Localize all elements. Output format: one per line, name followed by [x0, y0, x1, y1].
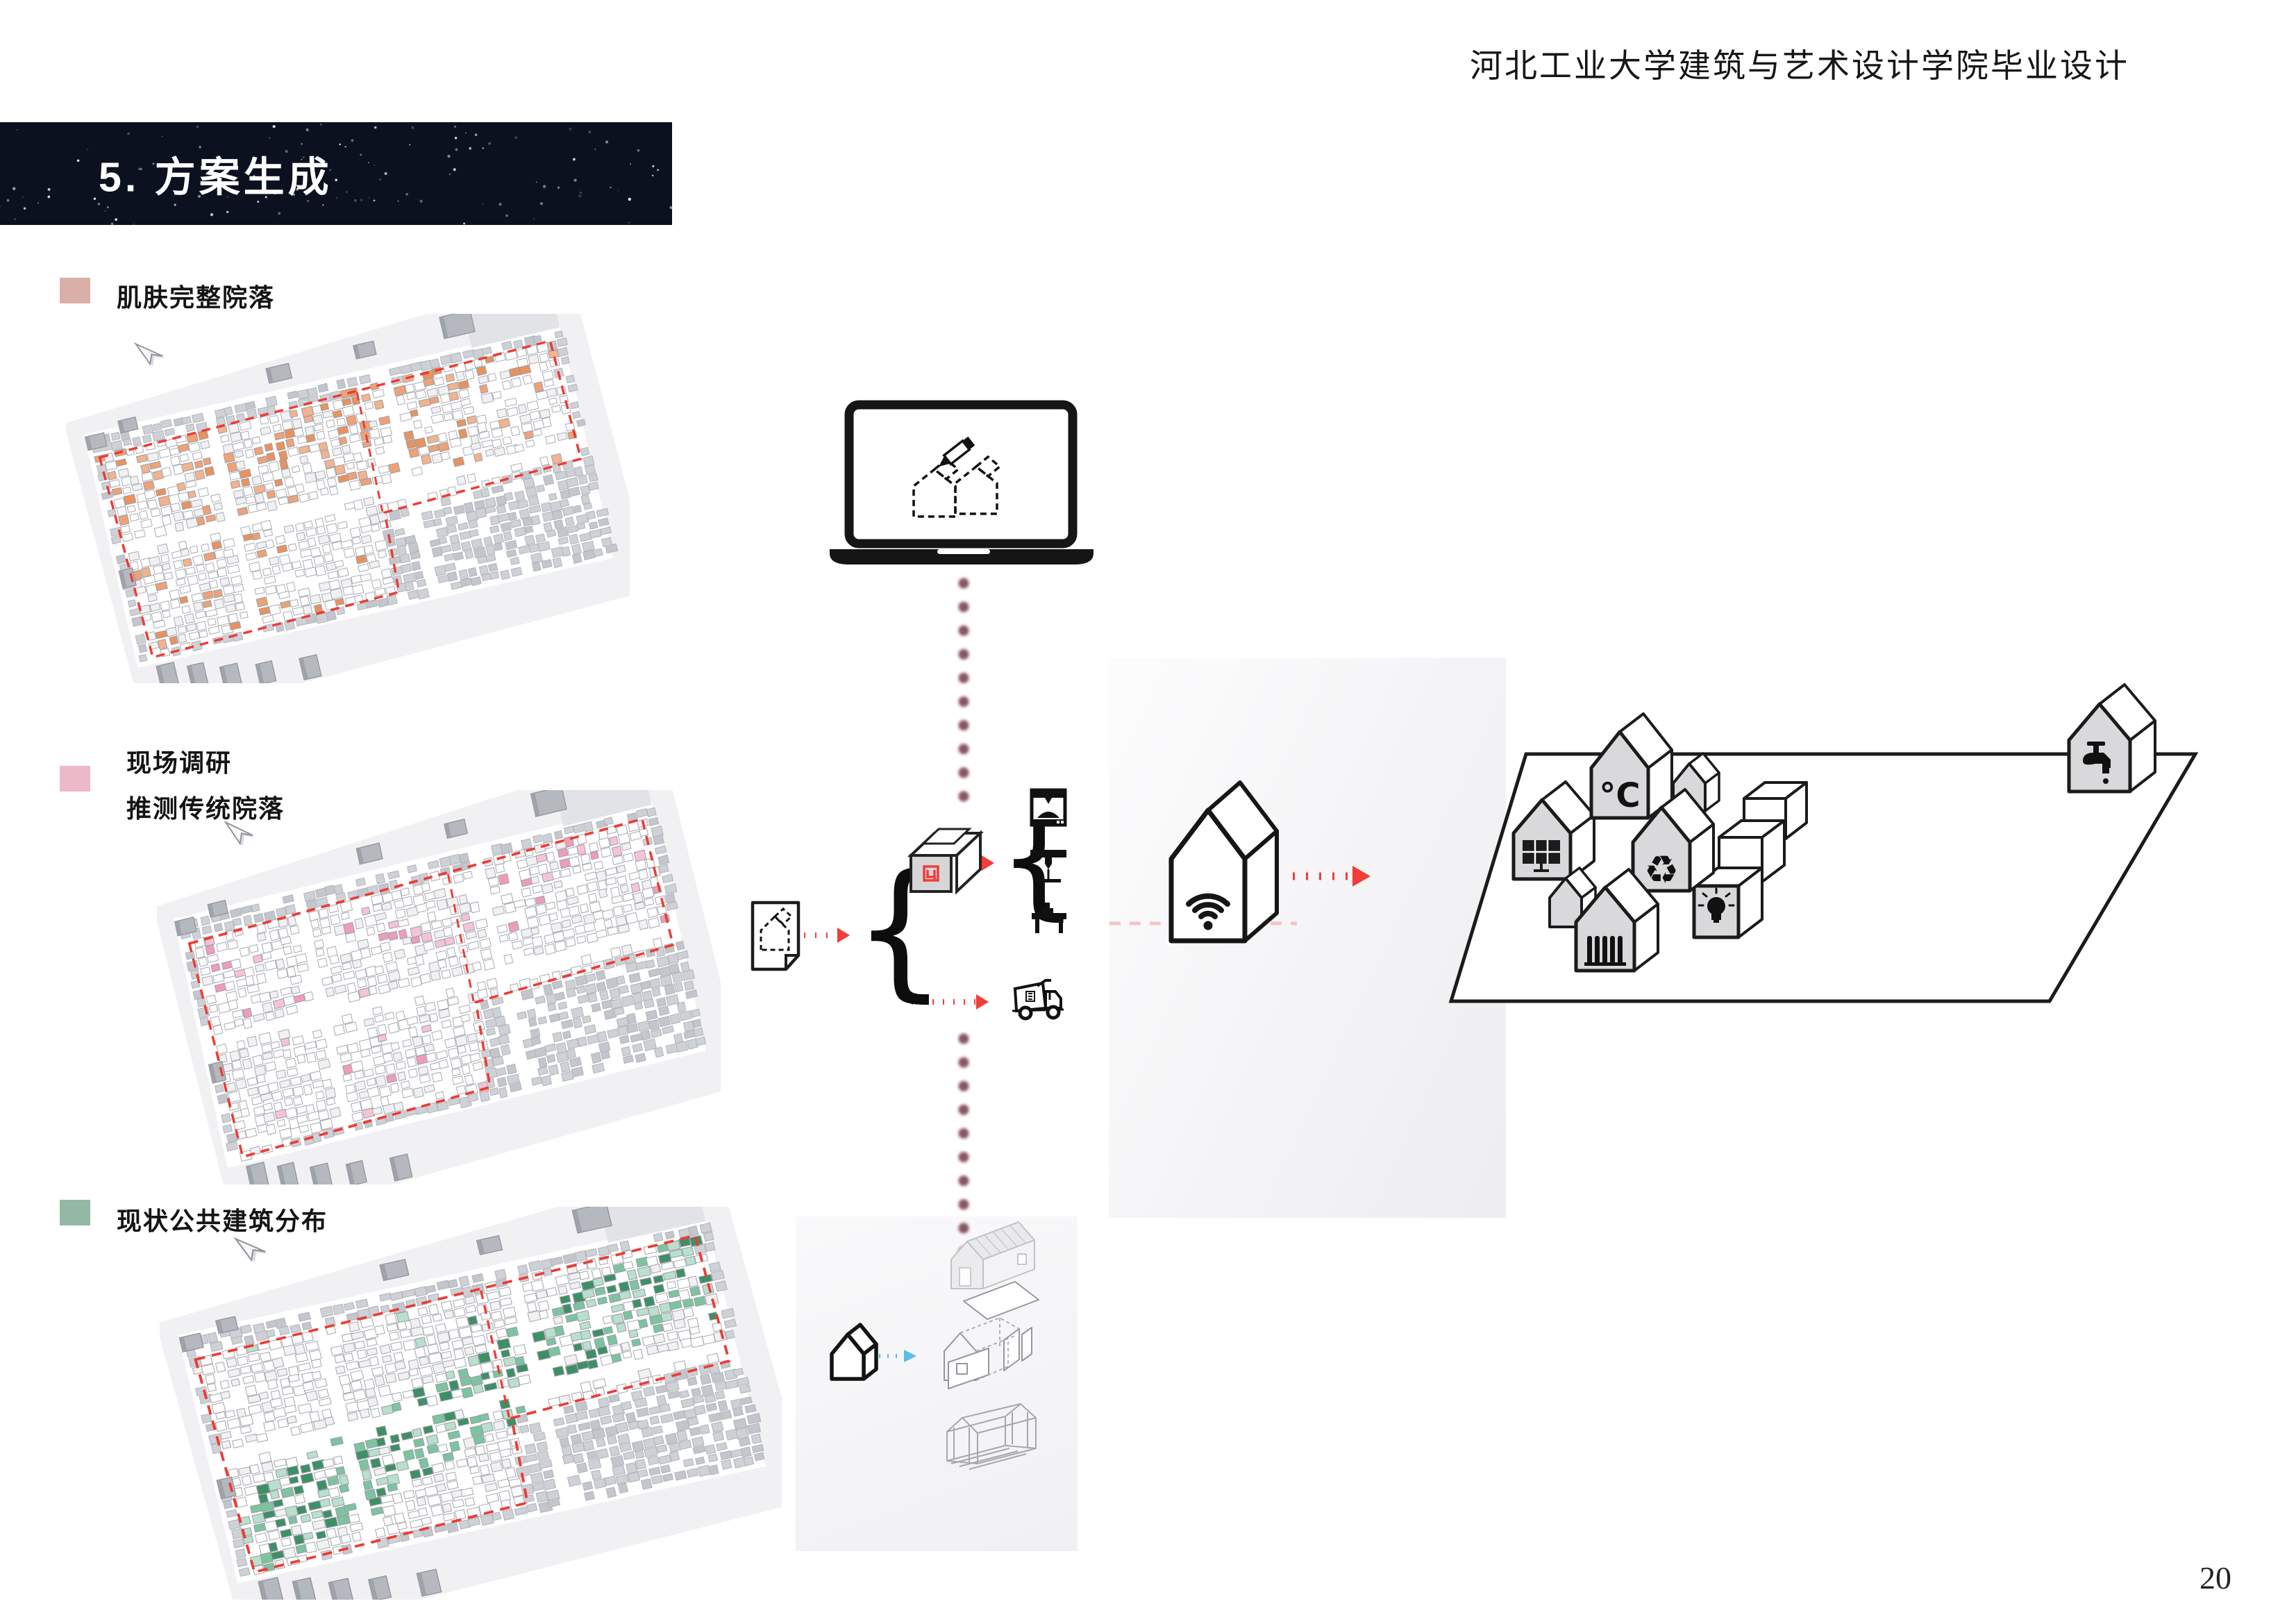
north-cursor-icon — [226, 815, 257, 849]
legend-swatch-public-buildings — [60, 1200, 90, 1225]
temperature-house-icon: °C — [1591, 714, 1672, 818]
red-arrow-document-to-brace — [804, 928, 850, 943]
water-house-icon — [2069, 685, 2155, 792]
brace-right-icon: { — [998, 782, 1080, 932]
scan-background-right — [1109, 658, 1506, 1218]
section-banner: 5. 方案生成 — [0, 122, 672, 225]
north-cursor-icon — [235, 1232, 269, 1266]
extruder-nozzle-icon — [1030, 850, 1066, 882]
temperature-label: °C — [1599, 776, 1640, 815]
north-cursor-icon — [136, 337, 167, 369]
legend-label-skin-intact: 肌肤完整院落 — [117, 278, 275, 314]
stacked-boxes-icon — [1719, 782, 1807, 882]
portfolio-page: 河北工业大学建筑与艺术设计学院毕业设计 5. 方案生成 肌肤完整院落 现场调研 … — [0, 0, 2296, 1624]
platform-base — [1451, 754, 2195, 1001]
scan-background-bottom — [796, 1216, 1078, 1551]
radiator-icon — [1584, 936, 1626, 966]
map-existing-public-buildings — [160, 1207, 782, 1600]
legend-swatch-skin-intact — [60, 278, 90, 303]
blueprint-document-icon — [753, 903, 798, 969]
map-surveyed-traditional-courtyards — [157, 790, 721, 1184]
recycle-icon: ♻ — [1644, 848, 1679, 893]
small-blank-house-icon — [1550, 868, 1595, 927]
red-arrow-box-to-tools — [957, 855, 994, 871]
bulb-icon — [1707, 897, 1725, 923]
section-title: 5. 方案生成 — [99, 144, 333, 203]
brace-left-icon: { — [853, 842, 948, 1016]
cnc-table-icon — [1032, 903, 1066, 933]
3d-printer-icon — [1032, 790, 1065, 825]
legend-swatch-survey — [60, 766, 90, 792]
module-logo-icon — [924, 867, 938, 880]
recycle-house-icon: ♻ — [1633, 789, 1713, 893]
pencil-icon — [935, 437, 975, 471]
map-skin-intact-courtyards — [66, 314, 630, 683]
lighting-box-icon — [1694, 868, 1762, 937]
solar-house-icon — [1514, 782, 1594, 879]
small-house-icon — [1673, 753, 1719, 811]
faucet-icon — [2083, 742, 2111, 784]
module-box-icon — [911, 829, 980, 891]
laptop-icon — [830, 405, 1093, 564]
solar-panel-icon — [1523, 840, 1560, 871]
truck-icon — [1012, 980, 1064, 1019]
legend-label-survey-line1: 现场调研 — [126, 743, 232, 779]
page-header: 河北工业大学建筑与艺术设计学院毕业设计 — [1470, 39, 2129, 87]
red-arrow-to-truck — [912, 994, 989, 1010]
utilities-platform: °C ♻ — [1451, 685, 2195, 1001]
sketched-houses-icon — [914, 457, 1000, 517]
page-number: 20 — [2199, 1559, 2231, 1596]
heating-house-icon — [1576, 869, 1658, 971]
